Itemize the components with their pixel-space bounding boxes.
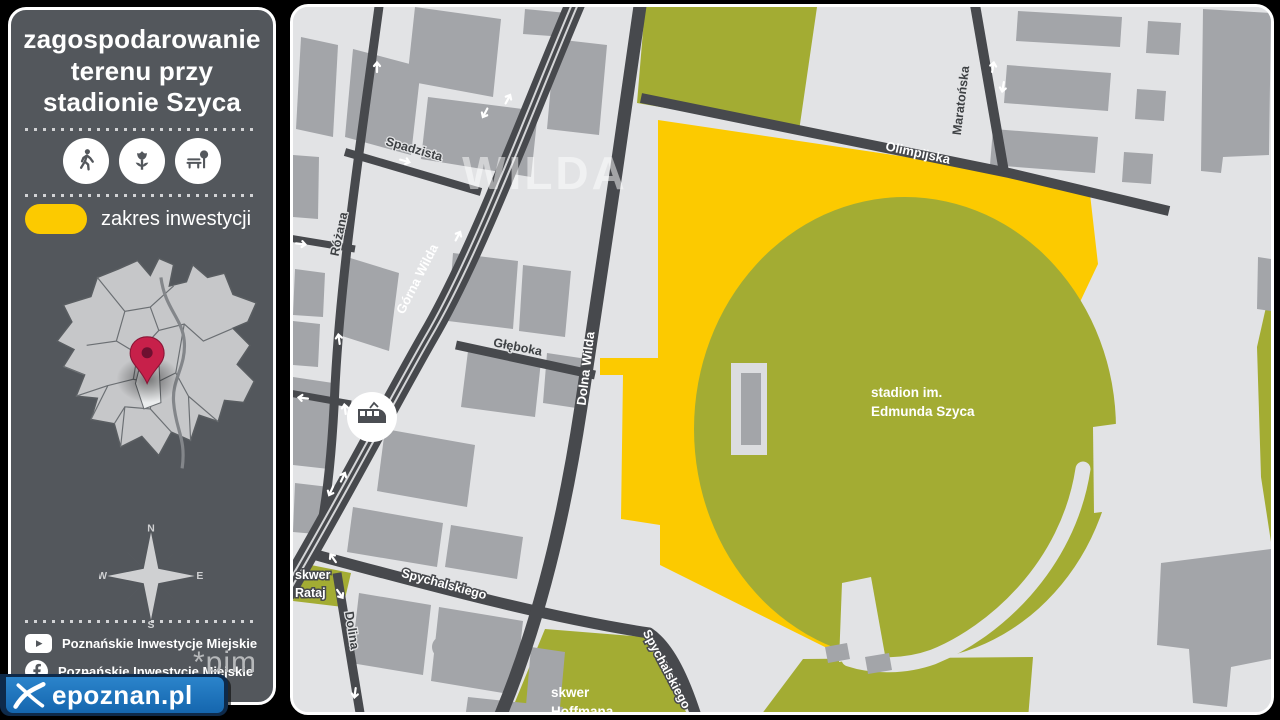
info-panel: zagospodarowanie terenu przy stadionie S… bbox=[8, 7, 276, 705]
pedestrian-icon bbox=[63, 138, 109, 184]
skwer-hoffmana-label: skwer bbox=[551, 685, 590, 700]
city-minimap bbox=[23, 246, 267, 504]
district-watermark: WILDA bbox=[462, 147, 628, 199]
epoznan-watermark[interactable]: epoznan.pl bbox=[0, 674, 228, 716]
epoznan-logo-icon bbox=[12, 680, 46, 710]
stadium-label: Edmunda Szyca bbox=[871, 404, 975, 419]
epoznan-logo-text: epoznan.pl bbox=[52, 680, 193, 711]
stadium-label: stadion im. bbox=[871, 385, 942, 400]
divider bbox=[25, 128, 259, 131]
legend: zakres inwestycji bbox=[25, 204, 251, 234]
legend-swatch bbox=[25, 204, 87, 234]
divider bbox=[25, 194, 259, 197]
map-panel: WILDA Spadzista Różana Górna Wilda Głębo… bbox=[290, 4, 1274, 715]
flower-icon bbox=[119, 138, 165, 184]
skwer-hoffmana-label: Hoffmana bbox=[551, 704, 614, 712]
feature-icons bbox=[11, 138, 273, 184]
street-map: WILDA Spadzista Różana Górna Wilda Głębo… bbox=[293, 7, 1271, 712]
compass-rose: N E S W bbox=[99, 524, 203, 628]
compass-star bbox=[107, 532, 194, 619]
compass-w: W bbox=[99, 571, 107, 582]
skwer-rataj-label: skwer bbox=[295, 568, 331, 582]
page-title: zagospodarowanie terenu przy stadionie S… bbox=[11, 24, 273, 119]
tram-stop-icon bbox=[347, 392, 397, 442]
youtube-icon bbox=[25, 634, 52, 653]
skwer-rataj-label: Rataj bbox=[295, 586, 326, 600]
bench-tree-icon bbox=[175, 138, 221, 184]
compass-e: E bbox=[196, 571, 203, 582]
divider bbox=[25, 620, 259, 623]
legend-label: zakres inwestycji bbox=[101, 208, 251, 231]
compass-n: N bbox=[147, 524, 155, 534]
